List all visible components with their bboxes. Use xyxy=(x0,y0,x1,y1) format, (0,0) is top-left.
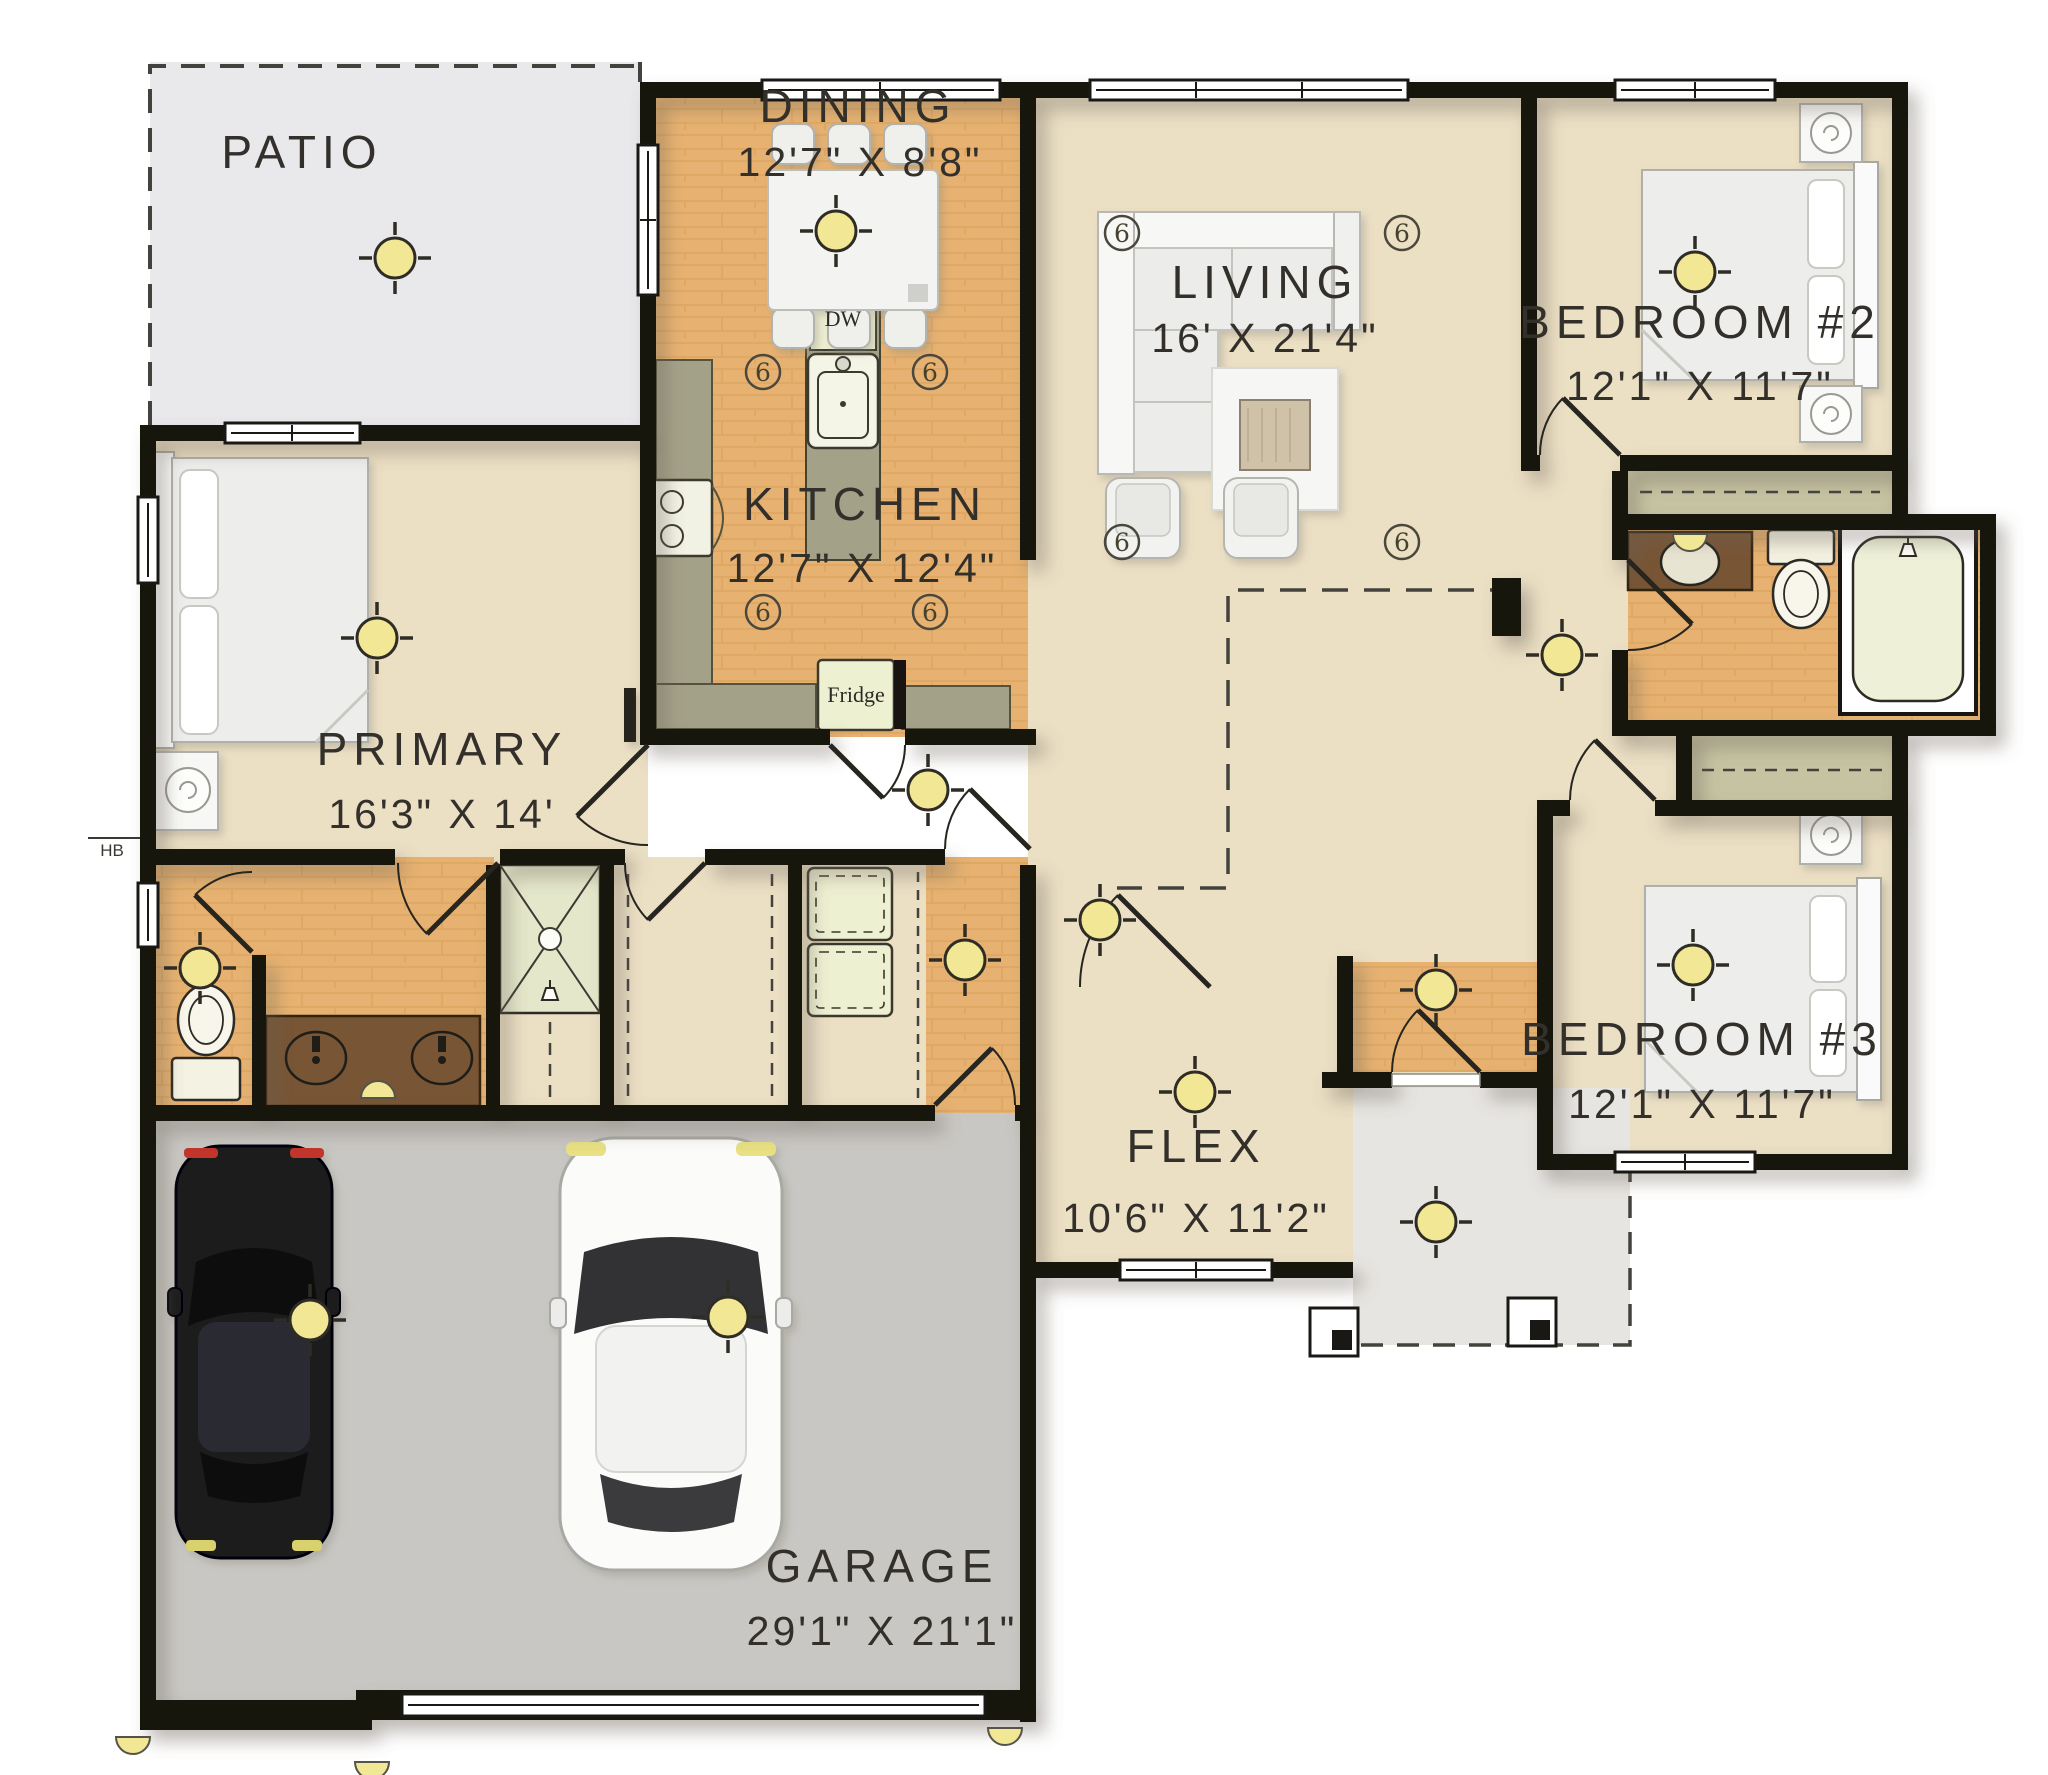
window-bedroom3-bottom xyxy=(1615,1152,1755,1172)
kitchen-sink xyxy=(808,354,878,448)
garage-door xyxy=(402,1694,985,1716)
room-dims-bedroom3: 12'1" X 11'7" xyxy=(1568,1081,1836,1127)
primary-tv xyxy=(624,688,636,742)
room-dims-flex: 10'6" X 11'2" xyxy=(1062,1195,1330,1241)
room-label-kitchen: KITCHEN xyxy=(743,478,987,530)
room-label-garage: GARAGE xyxy=(766,1540,999,1592)
bedroom3-bed xyxy=(1645,878,1881,1100)
living-armchair-2 xyxy=(1224,478,1298,558)
wall-sconce-icon xyxy=(116,1737,150,1754)
room-label-living: LIVING xyxy=(1172,256,1359,308)
window-primary-top xyxy=(225,423,360,443)
room-floor-mud-hall xyxy=(926,857,1028,1113)
window-toilet-left xyxy=(138,883,158,947)
primary-bed xyxy=(152,452,368,748)
taillight xyxy=(290,1148,324,1158)
window-bedroom2-top xyxy=(1615,80,1775,100)
room-dims-bedroom2: 12'1" X 11'7" xyxy=(1566,363,1834,409)
floor-plan: 66666666 PATIO DINING 12'7" X 8'8" LIVIN… xyxy=(0,0,2048,1775)
dishwasher-label: DW xyxy=(825,306,862,331)
pantry-shelf xyxy=(902,686,1010,729)
room-floor-closet-b3 xyxy=(1692,736,1892,800)
room-dims-kitchen: 12'7" X 12'4" xyxy=(727,545,998,591)
room-label-primary: PRIMARY xyxy=(317,723,568,775)
room-label-dining: DINING xyxy=(760,80,957,132)
pantry-divider-wall xyxy=(894,660,906,729)
svg-text:6: 6 xyxy=(922,598,938,627)
taillight xyxy=(184,1148,218,1158)
room-dims-garage: 29'1" X 21'1" xyxy=(747,1608,1018,1654)
porch-column xyxy=(1310,1308,1358,1356)
room-label-patio: PATIO xyxy=(221,126,382,178)
svg-text:6: 6 xyxy=(755,358,771,387)
room-dims-dining: 12'7" X 8'8" xyxy=(738,139,983,185)
kitchen-counter-south xyxy=(656,684,816,729)
room-dims-living: 16' X 21'4" xyxy=(1151,315,1378,361)
headlight xyxy=(566,1142,606,1156)
wall-sconce-icon xyxy=(355,1762,389,1775)
room-label-bedroom3: BEDROOM #3 xyxy=(1521,1013,1883,1065)
svg-text:6: 6 xyxy=(1394,219,1410,248)
primary-nightstand xyxy=(154,752,218,830)
window-living-top xyxy=(1090,80,1408,100)
car-black xyxy=(168,1146,340,1558)
room-dims-primary: 16'3" X 14' xyxy=(328,791,555,837)
bedroom2-nightstand xyxy=(1800,104,1862,162)
wall-sconce-icon xyxy=(988,1728,1022,1745)
hall-bath-toilet xyxy=(1768,530,1834,628)
room-label-flex: FLEX xyxy=(1126,1120,1265,1172)
window-dining-west xyxy=(638,145,658,295)
primary-shower xyxy=(500,865,600,1013)
porch-column xyxy=(1508,1298,1556,1346)
range-stove xyxy=(650,480,723,556)
svg-text:6: 6 xyxy=(1114,219,1130,248)
window-primary-left xyxy=(138,497,158,583)
hall-bath-tub xyxy=(1840,524,1976,714)
svg-text:6: 6 xyxy=(922,358,938,387)
headlight xyxy=(736,1142,776,1156)
svg-text:6: 6 xyxy=(1394,528,1410,557)
car-white xyxy=(550,1138,792,1570)
hose-bib-label: HB xyxy=(100,841,124,860)
room-label-bedroom2: BEDROOM #2 xyxy=(1519,296,1881,348)
svg-text:6: 6 xyxy=(1114,528,1130,557)
door-hall-mudhall xyxy=(945,789,1030,849)
fridge-label: Fridge xyxy=(827,682,884,707)
front-door-threshold xyxy=(1392,1074,1480,1086)
svg-text:6: 6 xyxy=(755,598,771,627)
window-flex-bottom xyxy=(1120,1260,1272,1280)
